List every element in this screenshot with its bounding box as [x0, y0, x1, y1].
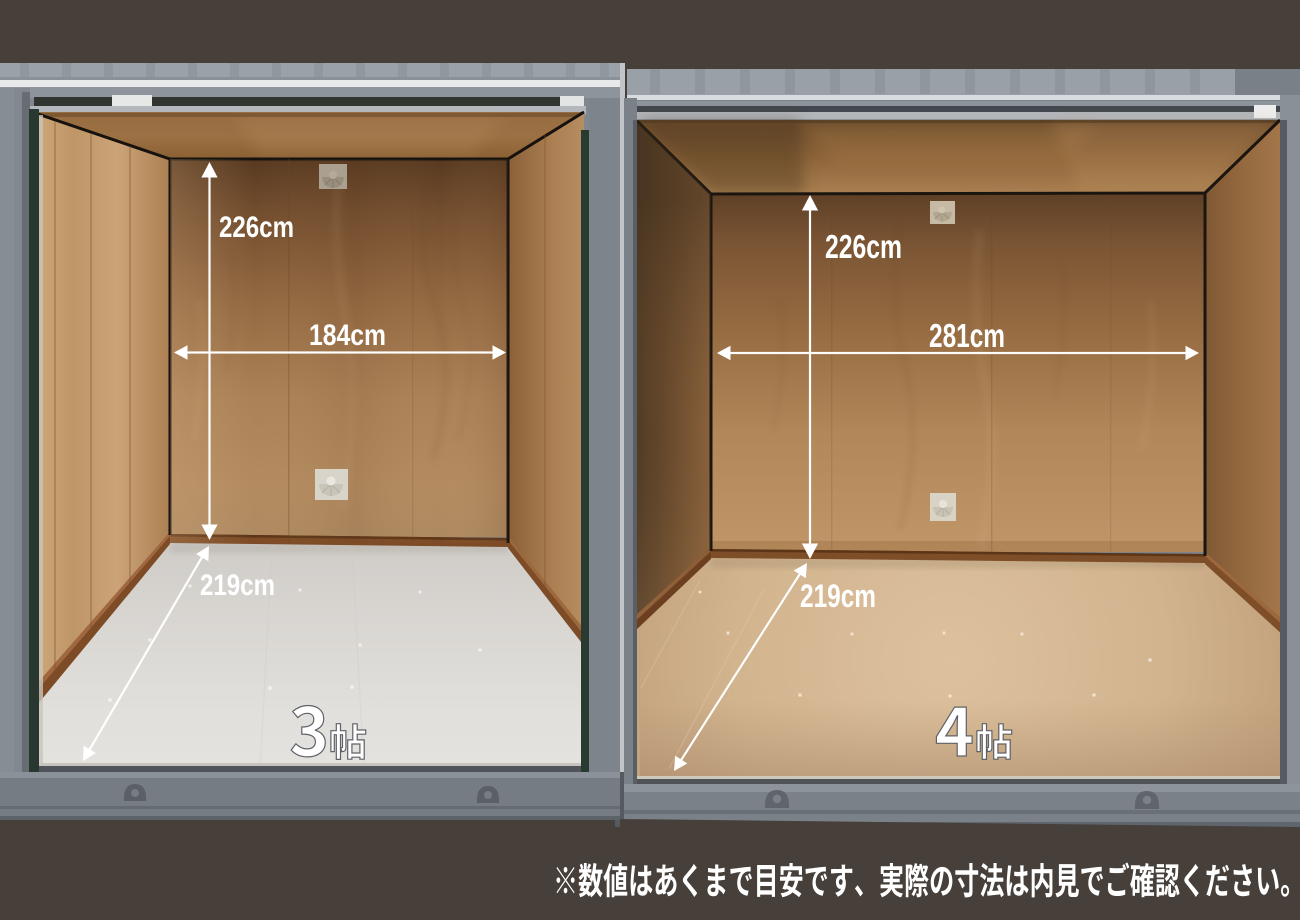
svg-text:219cm: 219cm — [800, 578, 876, 614]
svg-text:226cm: 226cm — [825, 228, 902, 265]
svg-text:281cm: 281cm — [929, 317, 1005, 354]
svg-text:219cm: 219cm — [200, 569, 275, 602]
svg-text:184cm: 184cm — [309, 319, 386, 352]
svg-text:226cm: 226cm — [219, 211, 294, 244]
